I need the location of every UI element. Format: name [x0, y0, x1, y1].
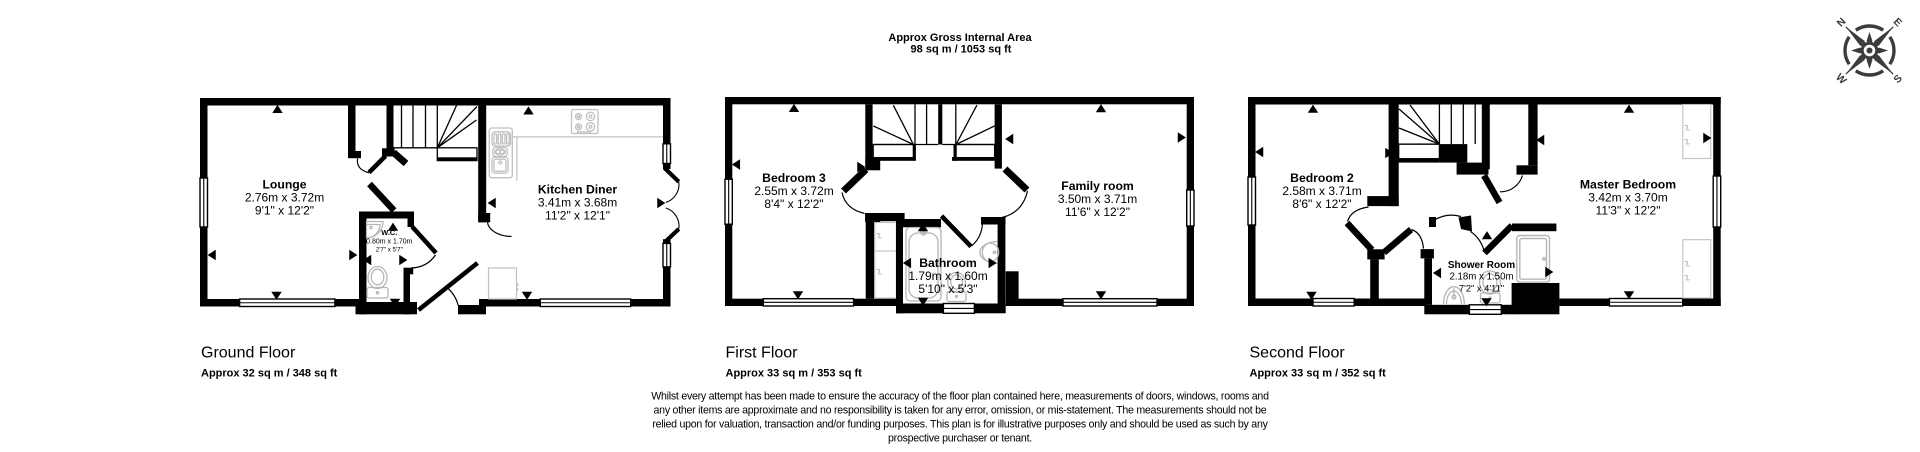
svg-text:11'6" x 12'2": 11'6" x 12'2": [1065, 205, 1130, 219]
svg-text:0.80m x 1.70m: 0.80m x 1.70m: [366, 238, 412, 245]
svg-text:11'2" x 12'1": 11'2" x 12'1": [545, 209, 610, 223]
svg-text:relied upon for valuation, tra: relied upon for valuation, transaction a…: [652, 419, 1268, 431]
svg-text:5'10" x 5'3": 5'10" x 5'3": [918, 282, 977, 296]
svg-text:Kitchen Diner: Kitchen Diner: [538, 183, 617, 197]
svg-text:8'6" x 12'2": 8'6" x 12'2": [1292, 197, 1351, 211]
svg-text:First Floor: First Floor: [726, 345, 799, 362]
svg-text:Second Floor: Second Floor: [1250, 345, 1346, 362]
svg-text:Bedroom 2: Bedroom 2: [1290, 171, 1354, 185]
svg-text:3.41m x 3.68m: 3.41m x 3.68m: [538, 196, 617, 210]
svg-text:Approx 32 sq m / 348 sq ft: Approx 32 sq m / 348 sq ft: [201, 368, 338, 380]
svg-text:7'2" x 4'11": 7'2" x 4'11": [1459, 283, 1504, 293]
svg-text:Approx Gross Internal Area: Approx Gross Internal Area: [888, 32, 1032, 44]
svg-text:Family room: Family room: [1061, 179, 1134, 193]
svg-text:Bathroom: Bathroom: [919, 256, 977, 270]
svg-text:11'3" x 12'2": 11'3" x 12'2": [1596, 204, 1661, 218]
svg-text:Ground Floor: Ground Floor: [201, 345, 296, 362]
svg-text:2'7" x 5'7": 2'7" x 5'7": [376, 246, 403, 253]
svg-text:2.76m x 3.72m: 2.76m x 3.72m: [245, 191, 324, 205]
svg-text:Lounge: Lounge: [262, 178, 306, 192]
svg-text:Master Bedroom: Master Bedroom: [1580, 178, 1676, 192]
svg-text:2.58m x 3.71m: 2.58m x 3.71m: [1282, 184, 1361, 198]
svg-text:3.42m x 3.70m: 3.42m x 3.70m: [1588, 191, 1667, 205]
svg-text:Approx 33 sq m / 352 sq ft: Approx 33 sq m / 352 sq ft: [1250, 368, 1387, 380]
svg-text:1.79m x 1.60m: 1.79m x 1.60m: [908, 269, 987, 283]
svg-text:3.50m x 3.71m: 3.50m x 3.71m: [1058, 192, 1137, 206]
svg-text:Approx 33 sq m / 353 sq ft: Approx 33 sq m / 353 sq ft: [726, 368, 863, 380]
svg-text:98 sq m / 1053 sq ft: 98 sq m / 1053 sq ft: [911, 44, 1012, 56]
svg-text:prospective purchaser or tenan: prospective purchaser or tenant.: [888, 433, 1032, 445]
svg-text:9'1" x 12'2": 9'1" x 12'2": [255, 204, 314, 218]
svg-text:Whilst every attempt has been: Whilst every attempt has been made to en…: [651, 391, 1269, 403]
svg-text:Bedroom 3: Bedroom 3: [762, 171, 826, 185]
svg-text:8'4" x 12'2": 8'4" x 12'2": [764, 197, 823, 211]
svg-text:2.55m x 3.72m: 2.55m x 3.72m: [754, 184, 833, 198]
svg-text:W.C.: W.C.: [381, 228, 397, 237]
svg-text:2.18m x 1.50m: 2.18m x 1.50m: [1449, 272, 1513, 283]
svg-text:Shower Room: Shower Room: [1448, 260, 1515, 271]
svg-text:any other items are approximat: any other items are approximate and no r…: [654, 405, 1267, 417]
